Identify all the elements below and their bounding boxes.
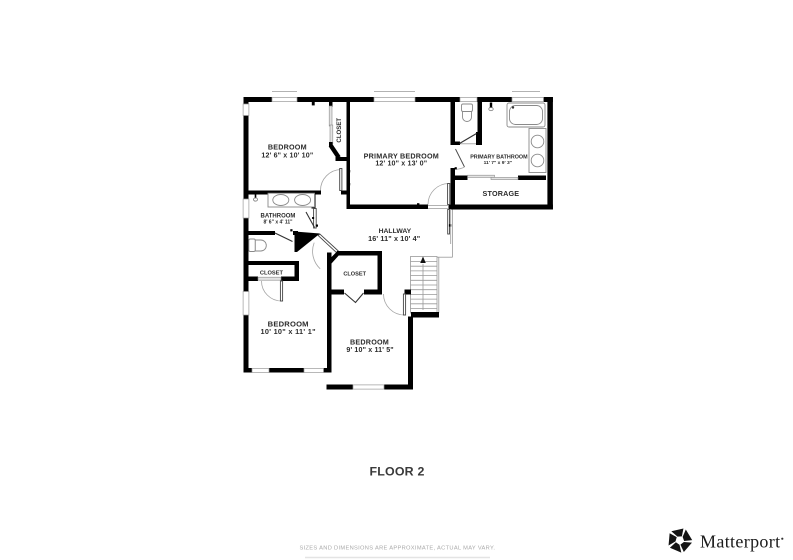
svg-text:Matterport: Matterport	[700, 532, 780, 552]
svg-text:BEDROOM: BEDROOM	[350, 337, 389, 346]
svg-text:10' 10" x 11' 1": 10' 10" x 11' 1"	[261, 327, 316, 336]
svg-text:FLOOR 2: FLOOR 2	[369, 464, 424, 478]
svg-text:CLOSET: CLOSET	[336, 118, 343, 143]
svg-text:PRIMARY BATHROOM: PRIMARY BATHROOM	[470, 154, 528, 160]
svg-text:16' 11" x 10' 4": 16' 11" x 10' 4"	[368, 234, 420, 243]
svg-text:9' 10" x 11' 5": 9' 10" x 11' 5"	[346, 346, 393, 354]
svg-text:CLOSET: CLOSET	[260, 270, 284, 276]
svg-text:STORAGE: STORAGE	[482, 189, 519, 198]
svg-text:8' 6" x 4' 11": 8' 6" x 4' 11"	[263, 219, 293, 225]
svg-text:12' 6" x 10' 10": 12' 6" x 10' 10"	[261, 151, 313, 159]
svg-text:12' 10" x 13' 0": 12' 10" x 13' 0"	[375, 159, 427, 167]
svg-text:BEDROOM: BEDROOM	[268, 142, 307, 151]
svg-text:CLOSET: CLOSET	[343, 272, 366, 278]
svg-text:11' 7" x 9' 3": 11' 7" x 9' 3"	[484, 160, 512, 166]
svg-text:SIZES AND DIMENSIONS ARE APPRO: SIZES AND DIMENSIONS ARE APPROXIMATE, AC…	[299, 545, 495, 551]
